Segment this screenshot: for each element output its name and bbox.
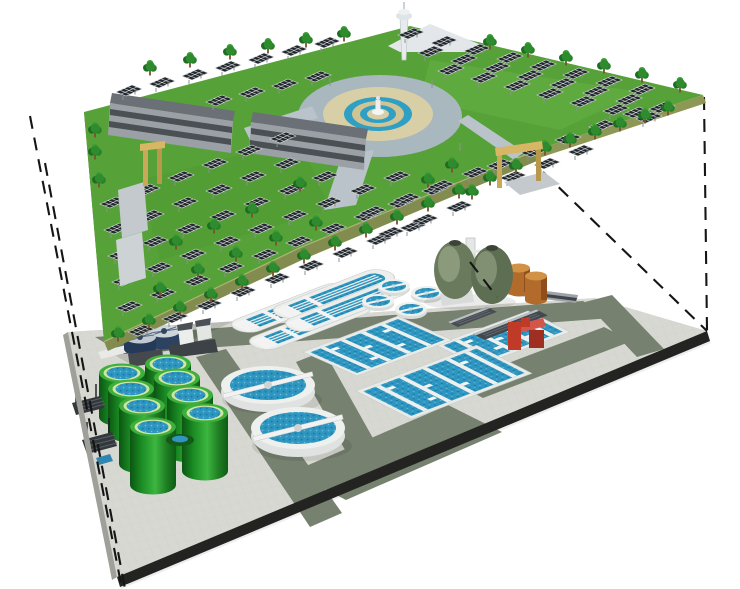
small-clarifier [362, 294, 394, 311]
ramp [116, 232, 146, 286]
tree [299, 32, 313, 48]
projection-line-right-vertical [704, 97, 707, 330]
large-clarifier [221, 366, 322, 414]
small-clarifier [395, 302, 427, 319]
ground-pad-water [172, 436, 188, 443]
small-clarifier [378, 279, 410, 296]
digester-tank [130, 418, 176, 495]
cutaway-scene [0, 0, 740, 589]
tree [183, 52, 197, 68]
egg-digester [471, 245, 513, 304]
scene-illustration [0, 0, 740, 589]
tree [261, 38, 275, 54]
ramp [118, 182, 148, 238]
tree [337, 26, 351, 42]
egg-digesters [424, 238, 516, 310]
orange-storage-tank [525, 272, 547, 305]
tree [223, 44, 237, 60]
tree [143, 60, 157, 76]
